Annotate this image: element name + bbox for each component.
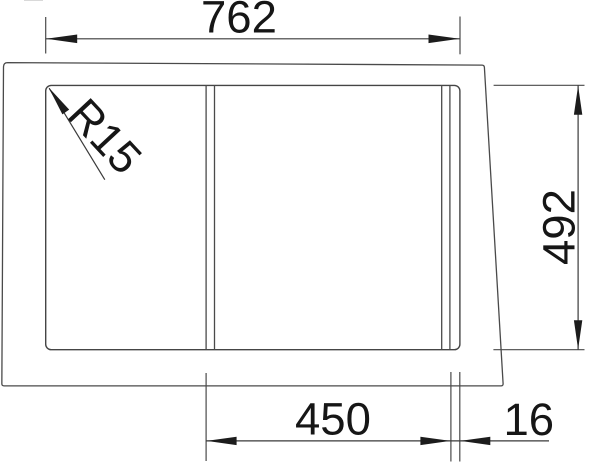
svg-text:762: 762 — [201, 0, 277, 43]
svg-text:450: 450 — [295, 394, 371, 445]
svg-text:16: 16 — [504, 394, 555, 445]
svg-text:492: 492 — [534, 189, 585, 265]
